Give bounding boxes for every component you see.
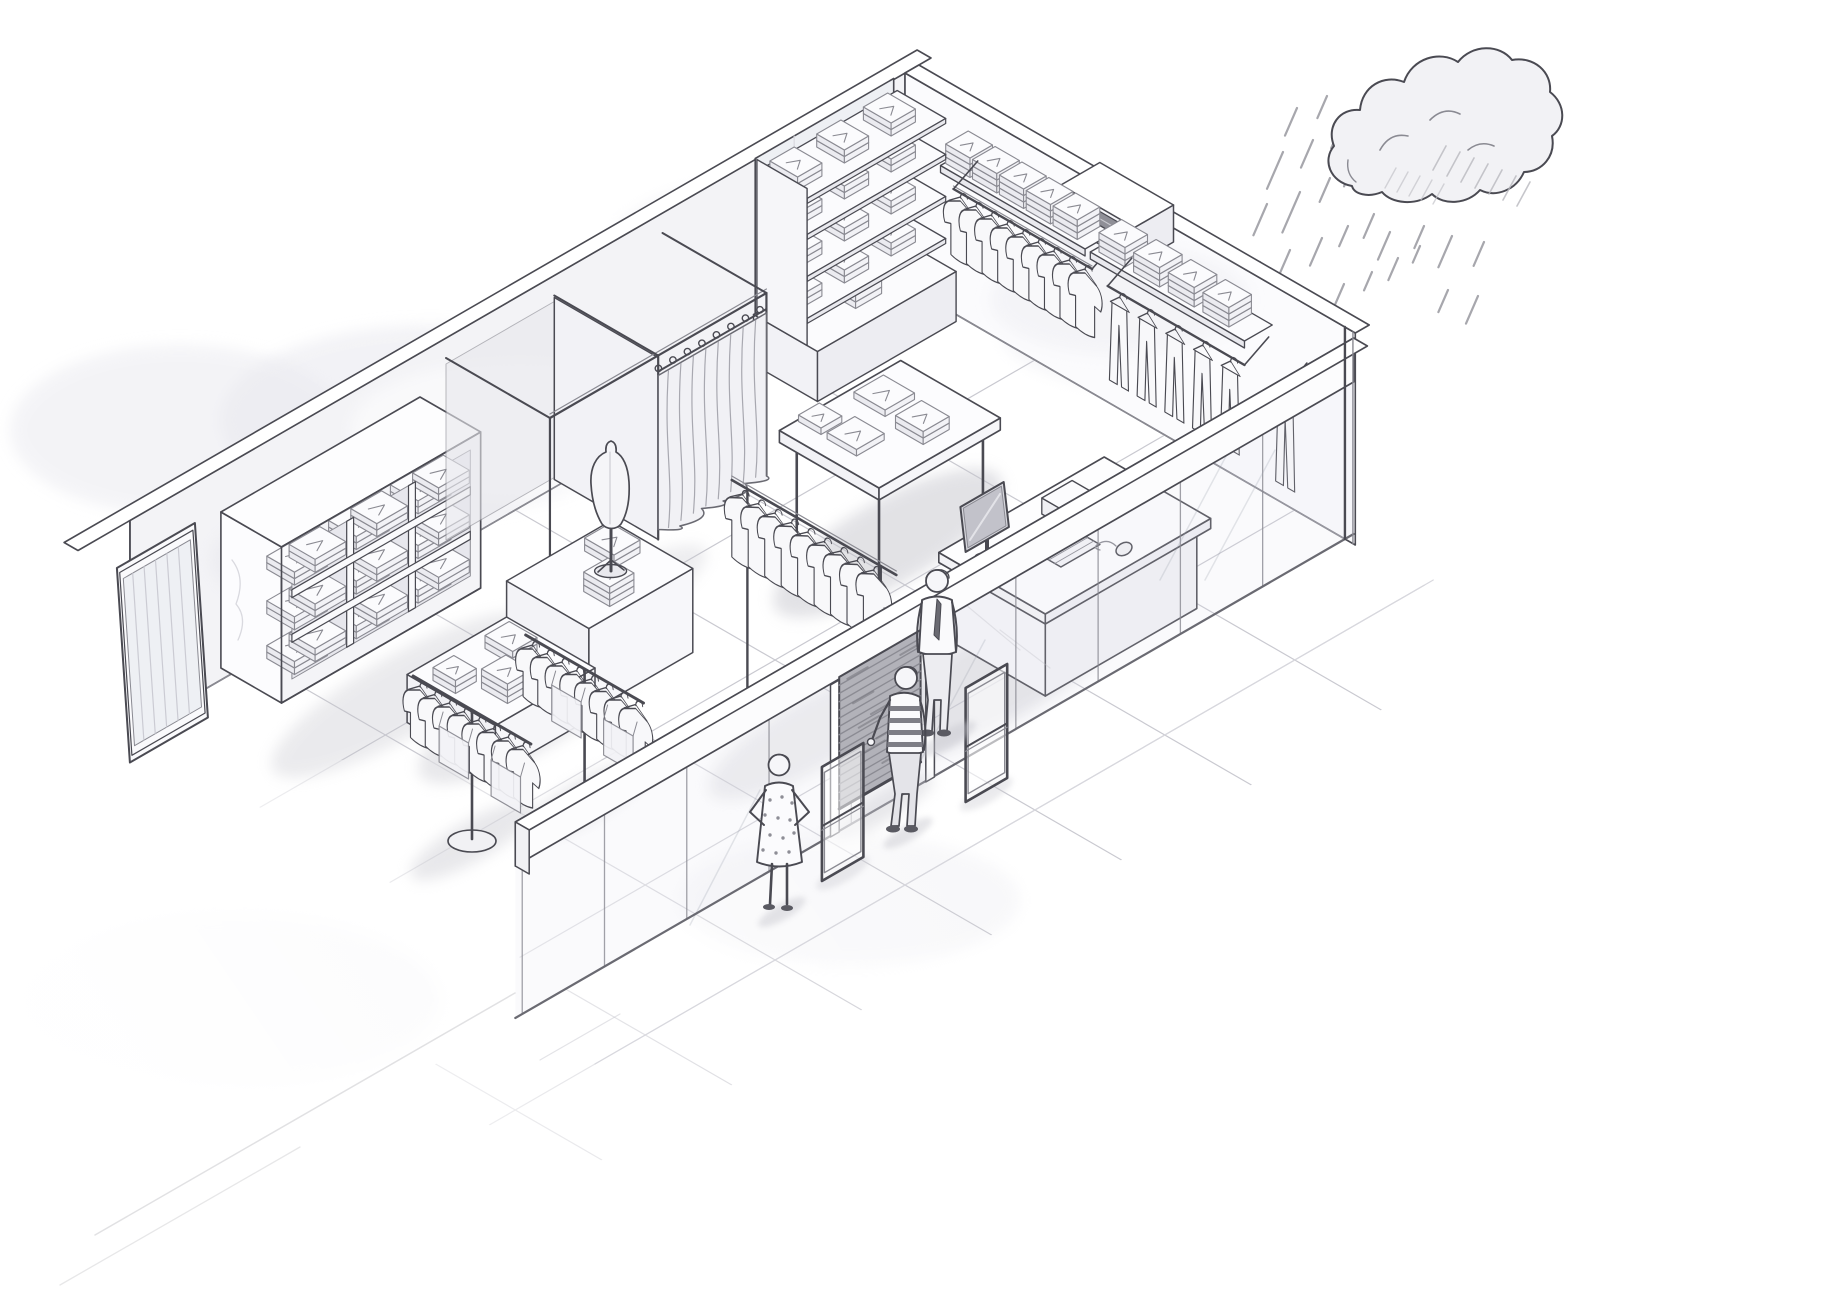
store-illustration: Clothing store interior - isometric penc… <box>0 0 1832 1302</box>
rain-cloud <box>1328 48 1562 206</box>
scene-canvas: Clothing store interior - isometric penc… <box>0 0 1832 1302</box>
